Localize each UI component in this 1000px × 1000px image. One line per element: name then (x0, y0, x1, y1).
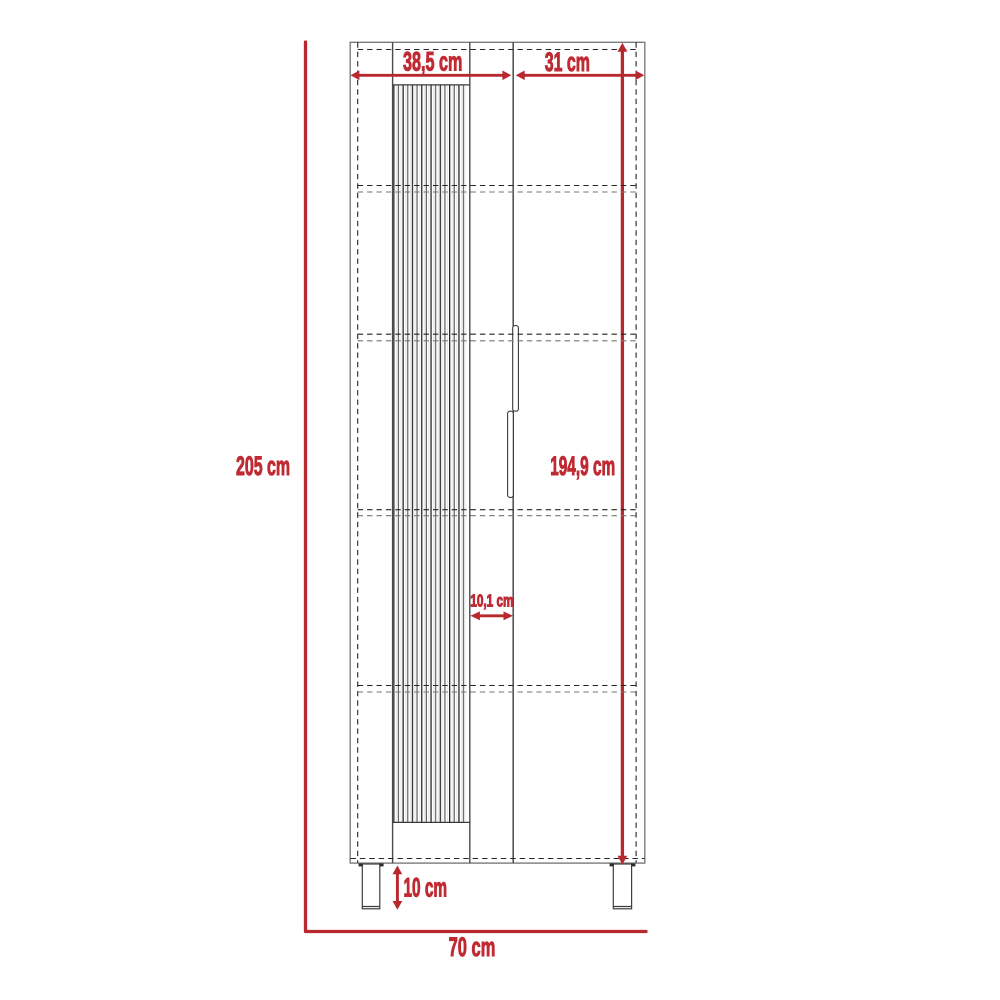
svg-text:10,1 cm: 10,1 cm (470, 593, 513, 612)
svg-text:70 cm: 70 cm (449, 932, 496, 962)
svg-text:205 cm: 205 cm (236, 451, 290, 481)
svg-text:38,5 cm: 38,5 cm (403, 46, 462, 76)
svg-text:31 cm: 31 cm (545, 47, 590, 77)
svg-text:10 cm: 10 cm (403, 872, 447, 903)
svg-text:194,9 cm: 194,9 cm (550, 450, 615, 481)
